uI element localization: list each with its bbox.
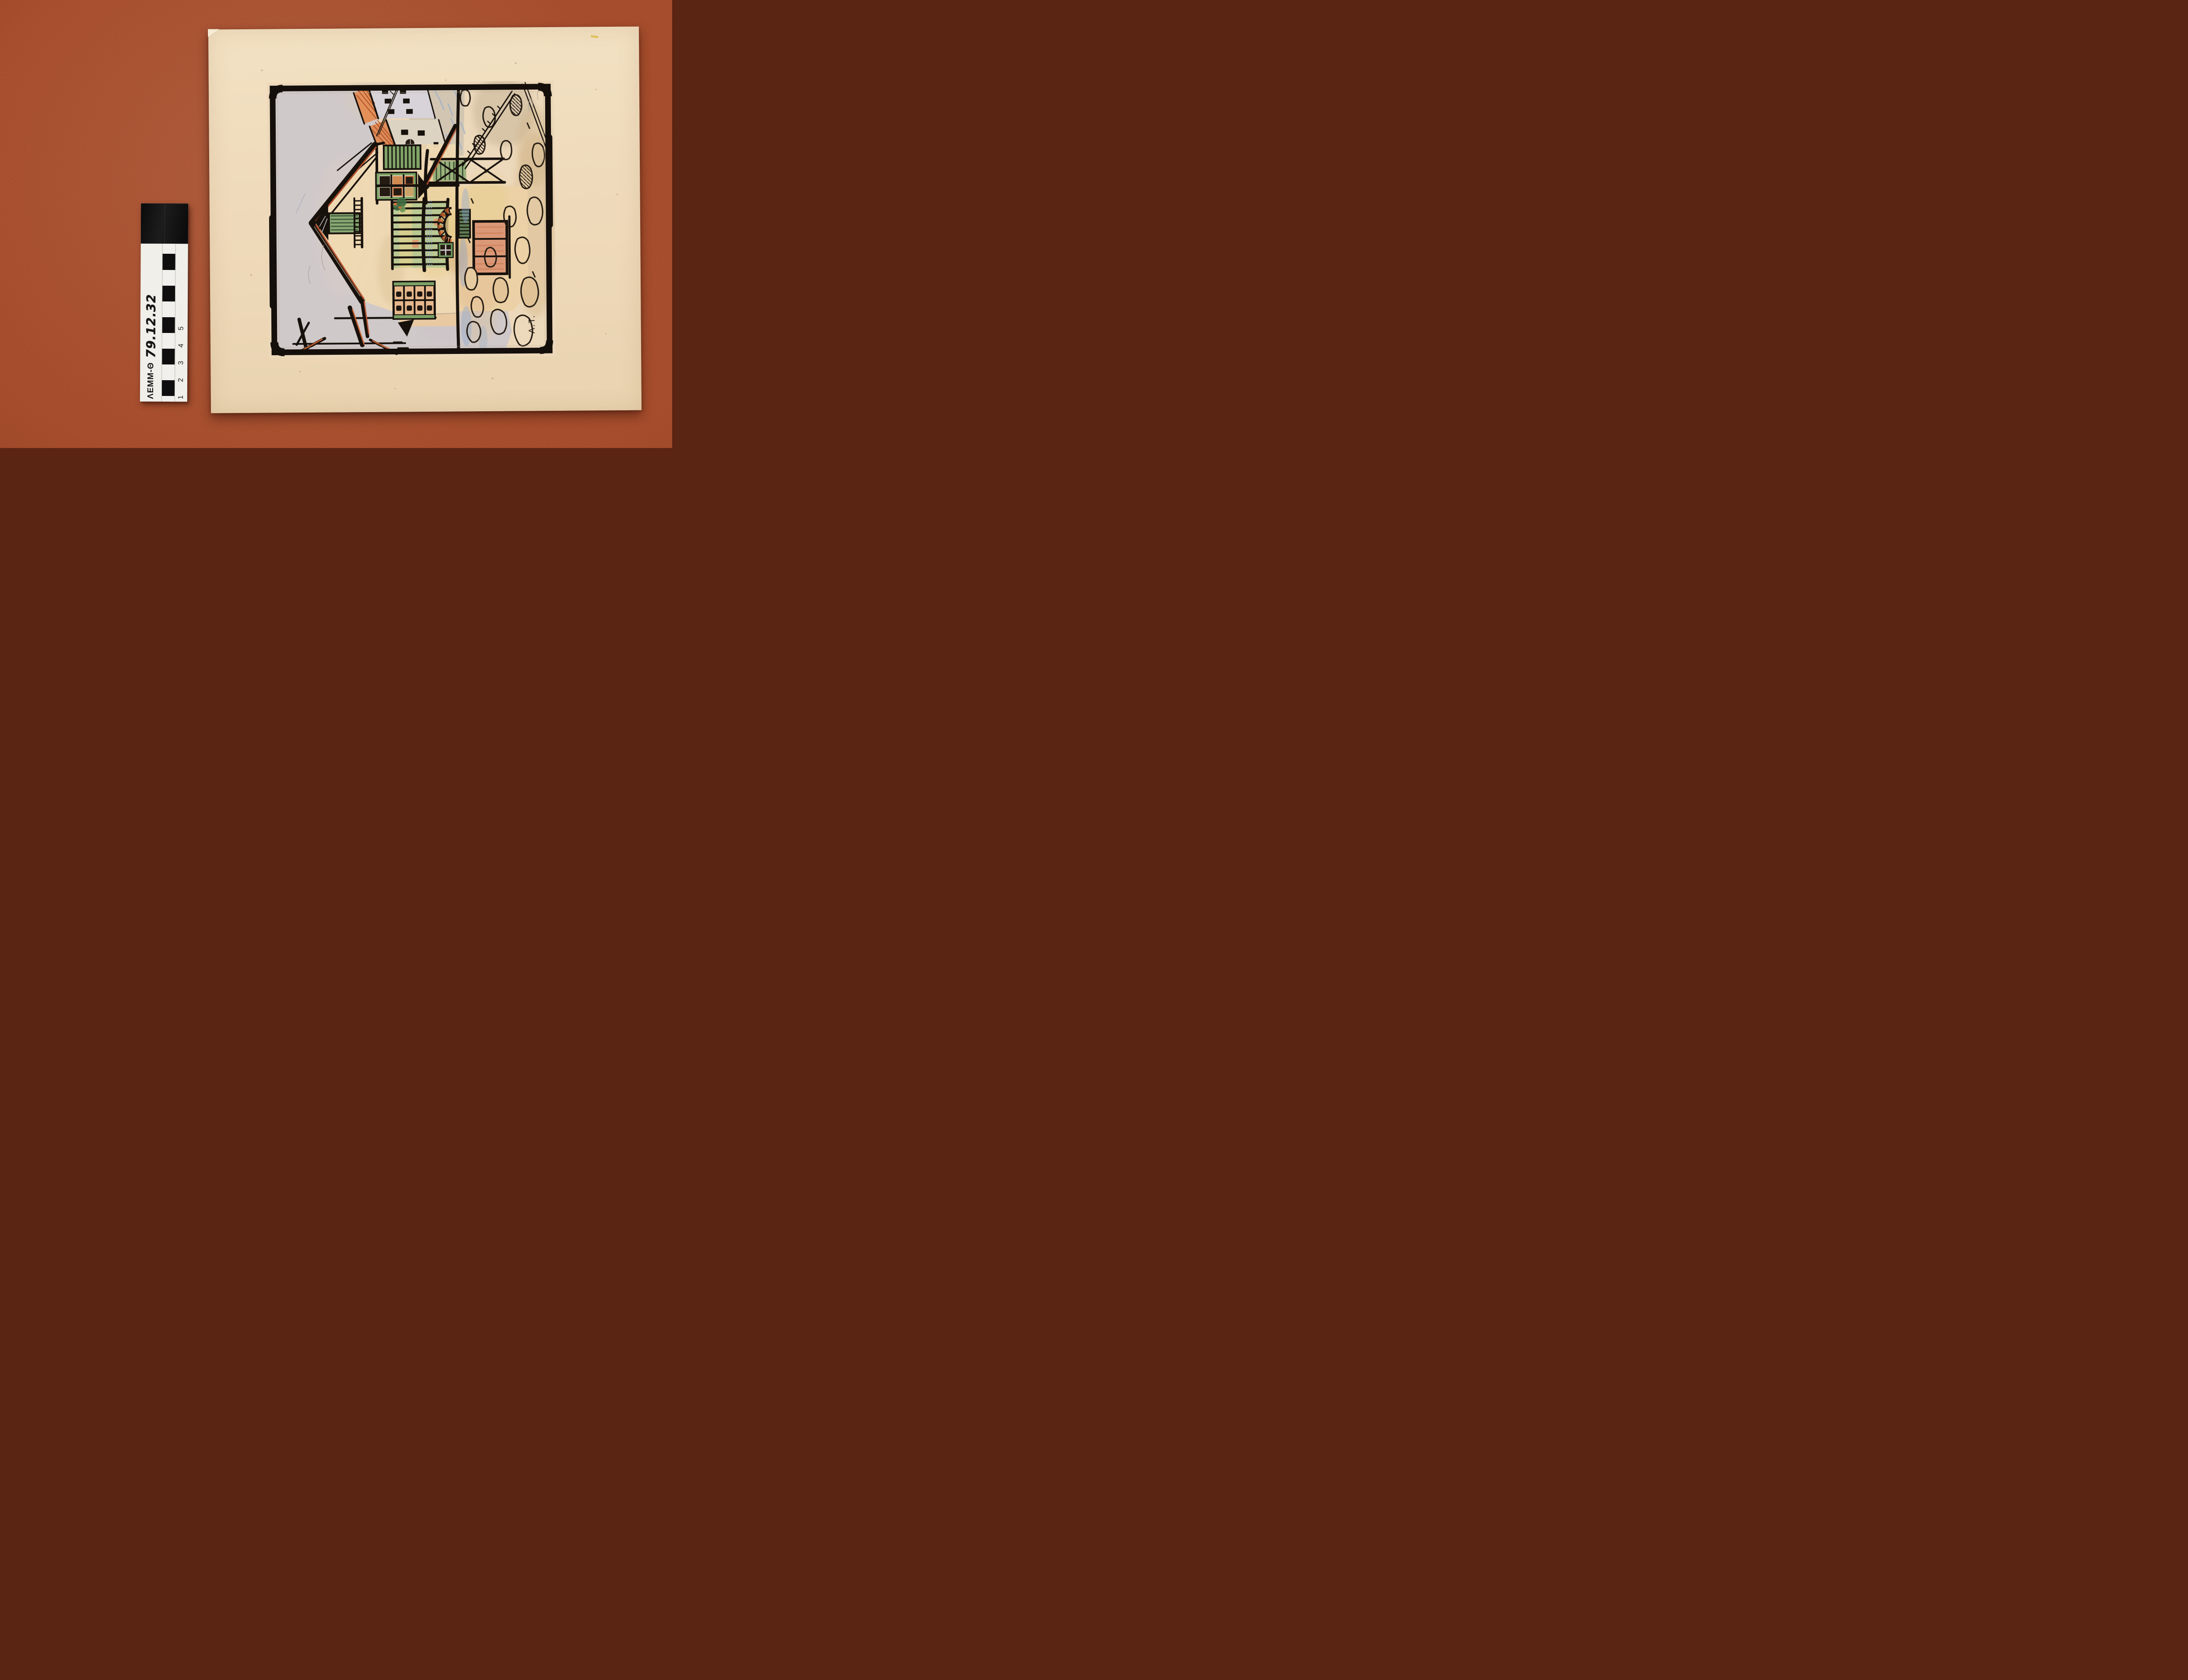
lower-window [393,282,435,319]
artist-signature: A.T. [527,314,537,333]
foxing-spot [492,378,494,379]
foxing-spot [515,63,516,64]
photograph: A.T. 79.12.32 ΛΕΜΜ-Θ 1 2 3 4 5 [0,0,672,448]
foxing-spot [596,89,597,90]
scale-bar-checker-strip [161,244,176,402]
foxing-spot [445,80,446,81]
inventory-number: 79.12.32 [144,294,158,357]
foxing-spot [617,194,618,195]
foxing-spot [261,70,263,71]
louver-shutter [384,145,421,169]
collection-code: ΛΕΜΜ-Θ [146,362,155,399]
foxing-spot [250,274,252,276]
scale-bar-numbers-column: 1 2 3 4 5 [175,244,188,402]
scale-bar-end-block [141,203,188,244]
foxing-spot [299,371,301,372]
scale-bar-body: 79.12.32 ΛΕΜΜ-Θ 1 2 3 4 5 [140,244,188,402]
scale-bar: 79.12.32 ΛΕΜΜ-Θ 1 2 3 4 5 [140,203,188,402]
artwork-drawing: A.T. [267,81,556,358]
board-corner-chip [208,29,219,37]
mount-board: A.T. [208,27,642,413]
yellow-mark [591,35,599,38]
scale-bar-label-column: 79.12.32 ΛΕΜΜ-Θ [140,244,162,402]
small-green-window [438,243,453,258]
foxing-spot [395,388,396,389]
scale-bar-tick-numbers: 1 2 3 4 5 [177,321,186,399]
foxing-spot [605,333,607,334]
